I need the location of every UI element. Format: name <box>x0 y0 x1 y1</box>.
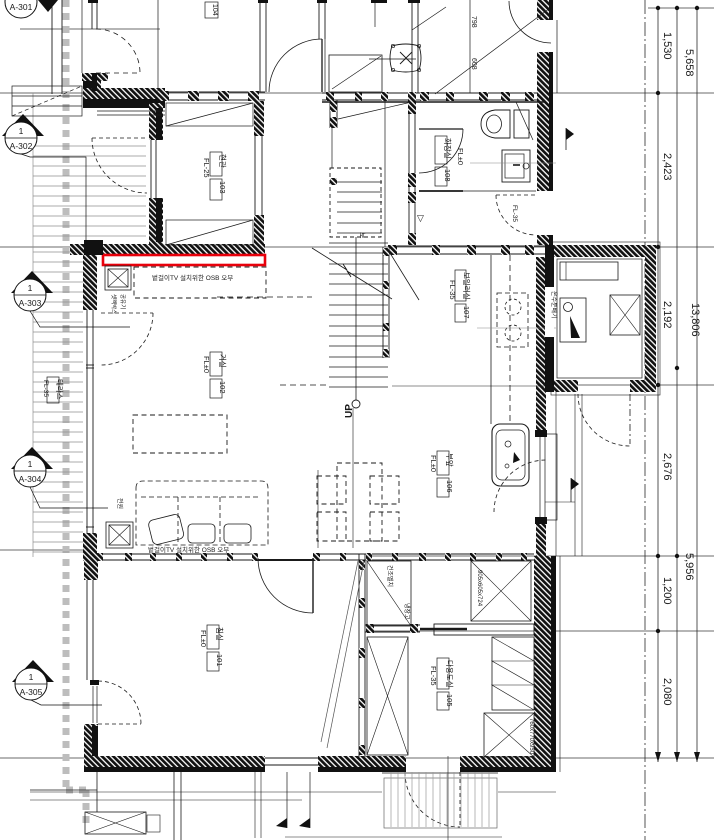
svg-text:건조벨치: 건조벨치 <box>386 565 394 587</box>
svg-text:2,080: 2,080 <box>661 678 673 706</box>
svg-text:FL-35: FL-35 <box>511 205 518 222</box>
svg-text:798: 798 <box>470 16 477 28</box>
svg-text:A-304: A-304 <box>19 474 42 484</box>
svg-text:A-302: A-302 <box>10 141 33 151</box>
svg-text:13,806: 13,806 <box>689 303 701 337</box>
svg-text:A-301: A-301 <box>10 2 33 12</box>
svg-text:테라스: 테라스 <box>55 379 64 400</box>
svg-text:106: 106 <box>445 480 454 493</box>
svg-text:103: 103 <box>218 181 227 194</box>
svg-text:냉장고: 냉장고 <box>403 603 411 620</box>
svg-text:104: 104 <box>211 4 218 16</box>
svg-text:905x605x724: 905x605x724 <box>476 570 482 607</box>
svg-text:760x770x950: 760x770x950 <box>528 718 534 755</box>
svg-text:FL-35: FL-35 <box>448 280 457 300</box>
svg-text:108: 108 <box>443 169 452 182</box>
svg-text:보: 보 <box>358 232 366 239</box>
svg-text:1: 1 <box>29 672 34 682</box>
svg-text:화장실: 화장실 <box>443 138 453 159</box>
svg-text:FL-35: FL-35 <box>429 666 438 686</box>
svg-text:1,530: 1,530 <box>661 32 673 60</box>
svg-text:FL-35: FL-35 <box>42 380 49 397</box>
svg-text:A-303: A-303 <box>19 298 42 308</box>
svg-text:FL±0: FL±0 <box>456 148 465 165</box>
svg-text:5,658: 5,658 <box>683 49 695 77</box>
svg-text:1: 1 <box>28 459 33 469</box>
svg-text:1: 1 <box>28 283 33 293</box>
svg-text:1,200: 1,200 <box>661 577 673 605</box>
svg-text:608: 608 <box>470 58 477 70</box>
svg-text:FL-25: FL-25 <box>202 158 211 178</box>
svg-text:UP: UP <box>344 404 355 418</box>
svg-text:▽: ▽ <box>417 213 424 223</box>
svg-text:벝걸이TV 설치위한 OSB 오부: 벝걸이TV 설치위한 OSB 오부 <box>152 273 233 282</box>
svg-text:5,956: 5,956 <box>683 553 695 581</box>
svg-text:102: 102 <box>218 381 227 394</box>
svg-text:FL±0: FL±0 <box>199 630 208 647</box>
svg-text:FL±0: FL±0 <box>202 356 211 373</box>
svg-text:101: 101 <box>215 654 224 667</box>
svg-text:공유기: 공유기 <box>119 294 127 309</box>
svg-text:전원: 전원 <box>116 498 124 509</box>
svg-text:2,676: 2,676 <box>661 453 673 481</box>
svg-text:부앞: 부앞 <box>445 453 454 467</box>
svg-text:2,192: 2,192 <box>661 301 673 329</box>
svg-text:FL±0: FL±0 <box>429 455 438 472</box>
svg-text:셋켹박스: 셋켹박스 <box>110 294 118 314</box>
svg-text:A-305: A-305 <box>20 687 43 697</box>
svg-text:107: 107 <box>462 306 471 319</box>
svg-text:벝걸이TV 설치위한 OSB 오부: 벝걸이TV 설치위한 OSB 오부 <box>148 545 229 554</box>
svg-text:온수분배기: 온수분배기 <box>550 291 558 319</box>
svg-text:2,423: 2,423 <box>661 153 673 181</box>
svg-text:1: 1 <box>19 126 24 136</box>
svg-text:거실: 거실 <box>218 354 228 368</box>
svg-text:침실: 침실 <box>215 627 225 641</box>
svg-text:현관: 현관 <box>218 154 228 168</box>
svg-text:보일러실: 보일러실 <box>462 272 472 300</box>
svg-text:105: 105 <box>445 694 454 707</box>
svg-text:다용도실: 다용도실 <box>445 660 455 688</box>
